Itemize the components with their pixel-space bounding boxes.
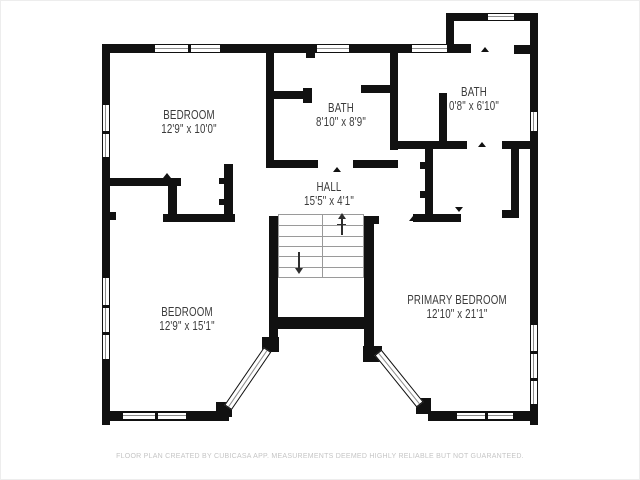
wall-segment <box>303 88 312 103</box>
wall-segment <box>361 85 390 93</box>
window-pane-divider <box>188 44 191 53</box>
window-glass-line <box>412 48 447 49</box>
window <box>154 44 221 53</box>
window-glass-line <box>105 278 106 359</box>
window-pane-divider <box>155 412 158 420</box>
room-label-bedroom-top-left: BEDROOM 12'9" x 10'0" <box>161 108 217 136</box>
window-pane-divider <box>530 378 538 381</box>
wall-segment <box>266 160 318 168</box>
room-name: HALL <box>304 180 354 194</box>
room-name: BEDROOM <box>159 305 215 319</box>
window-pane-divider <box>102 332 110 335</box>
window <box>102 104 110 158</box>
door-marker-icon <box>163 173 171 178</box>
stair-tread-line <box>279 256 363 257</box>
wall-segment <box>102 44 110 425</box>
wall-segment <box>269 216 278 349</box>
window-glass-line <box>533 325 534 404</box>
room-dims: 8'10" x 8'9" <box>316 115 366 129</box>
room-name: BATH <box>316 101 366 115</box>
wall-segment <box>390 52 398 150</box>
room-label-bedroom-bottom-left: BEDROOM 12'9" x 15'1" <box>159 305 215 333</box>
window-glass-line <box>317 48 349 49</box>
door-marker-icon <box>481 47 489 52</box>
disclaimer-text: FLOOR PLAN CREATED BY CUBICASA APP. MEAS… <box>1 453 639 460</box>
stair-tread-line <box>279 267 363 268</box>
wall-segment <box>425 149 433 218</box>
window <box>102 277 110 360</box>
window <box>411 44 448 53</box>
door-marker-icon <box>478 142 486 147</box>
window-pane-divider <box>102 305 110 308</box>
window-glass-line <box>379 352 421 403</box>
room-dims: 12'10" x 21'1" <box>407 307 506 321</box>
window <box>316 44 350 53</box>
door-marker-icon <box>333 167 341 172</box>
window-glass-line <box>488 16 514 17</box>
wall-segment <box>413 214 461 222</box>
bay-window <box>224 347 271 410</box>
wall-segment <box>364 216 379 224</box>
door-marker-icon <box>170 217 178 222</box>
door-marker-icon <box>455 207 463 212</box>
window-glass-line <box>228 350 267 407</box>
stair-up-arrow-icon <box>338 213 346 219</box>
wall-segment <box>306 52 315 58</box>
staircase <box>278 214 364 278</box>
room-dims: 15'5" x 4'1" <box>304 194 354 208</box>
floor-plan-canvas: BEDROOM 12'9" x 10'0" BATH 8'10" x 8'9" … <box>0 0 640 480</box>
window <box>530 111 538 132</box>
wall-segment <box>364 216 374 351</box>
wall-segment <box>274 91 305 99</box>
wall-segment <box>511 147 519 218</box>
room-dims: 0'8" x 6'10" <box>449 99 499 113</box>
window-pane-divider <box>485 412 488 420</box>
stair-arrow-line <box>298 252 300 269</box>
room-label-bath-top-right: BATH 0'8" x 6'10" <box>449 85 499 113</box>
wall-segment <box>168 184 177 216</box>
wall-segment <box>514 45 531 54</box>
wall-segment <box>398 141 467 149</box>
wall-segment <box>271 317 374 329</box>
window <box>487 13 515 21</box>
door-marker-icon <box>409 216 417 221</box>
wall-segment <box>266 52 274 167</box>
window <box>122 412 187 420</box>
wall-segment <box>219 199 224 205</box>
wall-segment <box>219 178 224 184</box>
stair-arrow-line <box>341 218 343 235</box>
window <box>456 412 514 420</box>
window-glass-line <box>533 112 534 131</box>
room-label-hall: HALL 15'5" x 4'1" <box>304 180 354 208</box>
window <box>530 324 538 405</box>
wall-segment <box>224 164 233 216</box>
bay-window <box>374 349 423 407</box>
wall-segment <box>353 160 398 168</box>
room-name: BEDROOM <box>161 108 217 122</box>
stair-tread-line <box>279 246 363 247</box>
room-name: BATH <box>449 85 499 99</box>
stair-tread-line <box>279 225 363 226</box>
stair-tread-line <box>279 236 363 237</box>
window-pane-divider <box>102 131 110 134</box>
wall-segment <box>420 162 425 169</box>
wall-segment <box>502 210 519 218</box>
room-dims: 12'9" x 15'1" <box>159 319 215 333</box>
room-label-primary-bedroom: PRIMARY BEDROOM 12'10" x 21'1" <box>407 293 506 321</box>
stair-down-arrow-icon <box>295 268 303 274</box>
room-name: PRIMARY BEDROOM <box>407 293 506 307</box>
room-label-bath-middle: BATH 8'10" x 8'9" <box>316 101 366 129</box>
wall-segment <box>439 93 447 141</box>
wall-segment <box>420 191 425 198</box>
window-pane-divider <box>530 351 538 354</box>
stair-arrow-tick <box>337 224 346 225</box>
room-dims: 12'9" x 10'0" <box>161 122 217 136</box>
wall-segment <box>110 212 116 220</box>
